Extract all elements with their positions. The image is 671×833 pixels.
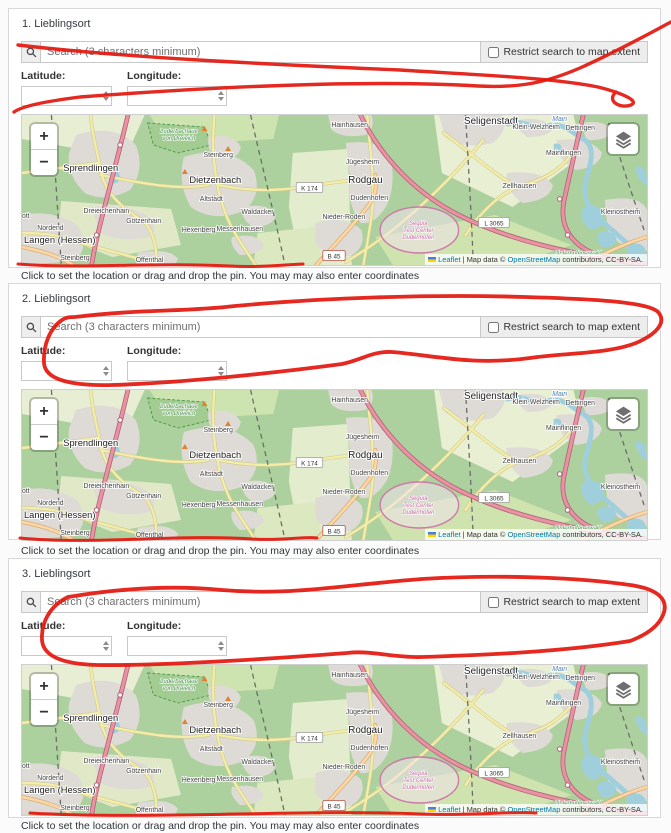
map-hint-text: Click to set the location or drag and dr… bbox=[21, 545, 648, 557]
svg-text:L 3065: L 3065 bbox=[484, 220, 504, 227]
zoom-in-button[interactable]: + bbox=[31, 399, 57, 425]
restrict-search-label: Restrict search to map extent bbox=[503, 596, 640, 608]
svg-text:Main: Main bbox=[552, 116, 567, 123]
layers-icon bbox=[614, 680, 633, 699]
attribution-divider: | bbox=[463, 255, 465, 264]
svg-text:Dietzenbach: Dietzenbach bbox=[189, 724, 241, 735]
openstreetmap-link[interactable]: OpenStreetMap bbox=[507, 805, 560, 814]
svg-text:Steinberg: Steinberg bbox=[60, 805, 89, 812]
zoom-out-button[interactable]: − bbox=[31, 150, 57, 175]
svg-text:Kleinostheim: Kleinostheim bbox=[601, 209, 640, 216]
latitude-group: Latitude: bbox=[21, 345, 112, 381]
latitude-group: Latitude: bbox=[21, 70, 112, 106]
map-attribution: Leaflet | Map data © OpenStreetMap contr… bbox=[425, 254, 647, 265]
restrict-search-addon[interactable]: Restrict search to map extent bbox=[480, 591, 648, 613]
svg-text:Rodgau: Rodgau bbox=[348, 450, 382, 461]
map-zoom-control: + − bbox=[31, 399, 57, 450]
svg-text:Jügesheim: Jügesheim bbox=[346, 159, 379, 166]
attribution-divider: | bbox=[463, 805, 465, 814]
restrict-search-addon[interactable]: Restrict search to map extent bbox=[480, 41, 648, 63]
svg-text:Jügesheim: Jügesheim bbox=[346, 434, 379, 441]
geoname-search-row: Restrict search to map extent bbox=[21, 41, 648, 63]
coordinates-row: Latitude: Longitude: bbox=[21, 70, 648, 106]
ukraine-flag-icon bbox=[428, 257, 436, 262]
svg-text:Waldacker: Waldacker bbox=[241, 484, 274, 491]
restrict-search-label: Restrict search to map extent bbox=[503, 321, 640, 333]
map-layers-control[interactable] bbox=[608, 674, 638, 704]
svg-text:Dietzenbach: Dietzenbach bbox=[189, 449, 241, 460]
svg-text:Dettingen: Dettingen bbox=[566, 400, 595, 407]
svg-text:B 45: B 45 bbox=[327, 528, 341, 535]
map-hint-text: Click to set the location or drag and dr… bbox=[21, 270, 648, 282]
svg-text:Mainflingen: Mainflingen bbox=[546, 425, 581, 432]
svg-text:Mainflingen: Mainflingen bbox=[546, 150, 581, 157]
svg-text:Zellhausen: Zellhausen bbox=[503, 183, 537, 190]
svg-text:Hainhausen: Hainhausen bbox=[331, 397, 368, 404]
svg-text:Hainhausen: Hainhausen bbox=[331, 672, 368, 679]
geoname-search-row: Restrict search to map extent bbox=[21, 591, 648, 613]
svg-text:Nordend: Nordend bbox=[37, 775, 63, 782]
svg-text:Götzenhain: Götzenhain bbox=[126, 493, 161, 500]
stepper-up-icon[interactable] bbox=[103, 91, 109, 95]
longitude-group: Longitude: bbox=[127, 345, 227, 381]
section-title: 2. Lieblingsort bbox=[22, 293, 648, 305]
svg-text:Dudenhofen: Dudenhofen bbox=[402, 785, 435, 791]
svg-text:Luderbachaue: Luderbachaue bbox=[160, 404, 198, 410]
svg-text:Dettingen: Dettingen bbox=[566, 125, 595, 132]
svg-text:Hexenberg: Hexenberg bbox=[182, 502, 216, 509]
attribution-suffix: contributors, CC-BY-SA. bbox=[562, 805, 643, 814]
svg-text:Luderbachaue: Luderbachaue bbox=[160, 679, 198, 685]
longitude-label: Longitude: bbox=[127, 70, 227, 82]
svg-text:Segula: Segula bbox=[409, 496, 428, 502]
search-icon bbox=[21, 591, 41, 613]
svg-text:Messenhausen: Messenhausen bbox=[217, 776, 264, 783]
restrict-search-label: Restrict search to map extent bbox=[503, 46, 640, 58]
leaflet-map[interactable]: K 174B 45L 3065SprendlingenDietzenbachRo… bbox=[21, 664, 648, 816]
stepper-down-icon[interactable] bbox=[103, 647, 109, 651]
search-input[interactable] bbox=[41, 316, 481, 338]
map-attribution: Leaflet | Map data © OpenStreetMap contr… bbox=[425, 804, 647, 815]
map-hint-text: Click to set the location or drag and dr… bbox=[21, 820, 648, 832]
openstreetmap-link[interactable]: OpenStreetMap bbox=[507, 255, 560, 264]
svg-text:Götzenhain: Götzenhain bbox=[126, 768, 161, 775]
svg-text:Offenthal: Offenthal bbox=[136, 532, 164, 539]
svg-text:Seligenstadt: Seligenstadt bbox=[464, 666, 518, 677]
svg-text:Dudenhofen: Dudenhofen bbox=[351, 745, 389, 752]
svg-text:K 174: K 174 bbox=[301, 460, 318, 467]
svg-text:Zellhausen: Zellhausen bbox=[503, 733, 537, 740]
map-attribution: Leaflet | Map data © OpenStreetMap contr… bbox=[425, 529, 647, 540]
longitude-label: Longitude: bbox=[127, 345, 227, 357]
svg-text:Rodgau: Rodgau bbox=[348, 175, 382, 186]
latitude-group: Latitude: bbox=[21, 620, 112, 656]
svg-text:von Dreieich: von Dreieich bbox=[163, 136, 196, 142]
leaflet-link[interactable]: Leaflet bbox=[438, 255, 461, 264]
svg-text:Altstadt: Altstadt bbox=[200, 471, 223, 478]
svg-text:Dudenhofen: Dudenhofen bbox=[402, 235, 435, 241]
longitude-stepper[interactable] bbox=[218, 86, 224, 106]
longitude-group: Longitude: bbox=[127, 620, 227, 656]
zoom-out-button[interactable]: − bbox=[31, 700, 57, 725]
geoname-search-row: Restrict search to map extent bbox=[21, 316, 648, 338]
attribution-mapdata: Map data © bbox=[467, 805, 506, 814]
latitude-input[interactable] bbox=[21, 361, 112, 381]
attribution-divider: | bbox=[463, 530, 465, 539]
leaflet-map[interactable]: K 174B 45L 3065SprendlingenDietzenbachRo… bbox=[21, 114, 648, 266]
svg-text:Langen (Hessen): Langen (Hessen) bbox=[24, 784, 95, 795]
stepper-down-icon[interactable] bbox=[218, 372, 224, 376]
lieblingsort-section: 3. Lieblingsort Restrict search to map e… bbox=[8, 558, 661, 818]
longitude-input[interactable] bbox=[127, 86, 227, 106]
longitude-group: Longitude: bbox=[127, 70, 227, 106]
svg-text:Altstadt: Altstadt bbox=[200, 746, 223, 753]
map-zoom-control: + − bbox=[31, 674, 57, 725]
svg-text:Kleinostheim: Kleinostheim bbox=[601, 759, 640, 766]
openstreetmap-link[interactable]: OpenStreetMap bbox=[507, 530, 560, 539]
svg-text:Seligenstadt: Seligenstadt bbox=[464, 116, 518, 127]
latitude-label: Latitude: bbox=[21, 620, 112, 632]
stepper-down-icon[interactable] bbox=[103, 97, 109, 101]
svg-text:Nordend: Nordend bbox=[37, 500, 63, 507]
stepper-up-icon[interactable] bbox=[103, 641, 109, 645]
svg-text:Segula: Segula bbox=[409, 771, 428, 777]
svg-text:Steinberg: Steinberg bbox=[204, 702, 233, 709]
svg-text:Hexenberg: Hexenberg bbox=[182, 227, 216, 234]
search-input[interactable] bbox=[41, 591, 481, 613]
svg-text:Dettingen: Dettingen bbox=[566, 675, 595, 682]
stepper-up-icon[interactable] bbox=[103, 366, 109, 370]
svg-text:Nieder-Roden: Nieder-Roden bbox=[322, 489, 365, 496]
restrict-search-addon[interactable]: Restrict search to map extent bbox=[480, 316, 648, 338]
svg-text:L 3065: L 3065 bbox=[484, 770, 504, 777]
layers-icon bbox=[614, 405, 633, 424]
osm-basemap: K 174B 45L 3065SprendlingenDietzenbachRo… bbox=[22, 115, 647, 265]
ukraine-flag-icon bbox=[428, 807, 436, 812]
longitude-input[interactable] bbox=[127, 361, 227, 381]
latitude-input[interactable] bbox=[21, 86, 112, 106]
attribution-mapdata: Map data © bbox=[467, 530, 506, 539]
latitude-stepper[interactable] bbox=[103, 636, 109, 656]
leaflet-link[interactable]: Leaflet bbox=[438, 805, 461, 814]
svg-text:Test Center: Test Center bbox=[403, 503, 434, 509]
svg-text:Messenhausen: Messenhausen bbox=[217, 501, 264, 508]
svg-text:Altstadt: Altstadt bbox=[200, 196, 223, 203]
ukraine-flag-icon bbox=[428, 532, 436, 537]
longitude-input[interactable] bbox=[127, 636, 227, 656]
svg-text:von Dreieich: von Dreieich bbox=[163, 411, 196, 417]
restrict-search-checkbox[interactable] bbox=[488, 597, 499, 608]
svg-text:Nordend: Nordend bbox=[37, 225, 63, 232]
svg-text:ott: ott bbox=[22, 763, 30, 770]
svg-text:Dreieichenhain: Dreieichenhain bbox=[84, 208, 130, 215]
zoom-out-button[interactable]: − bbox=[31, 425, 57, 450]
latitude-label: Latitude: bbox=[21, 345, 112, 357]
svg-text:L 3065: L 3065 bbox=[484, 495, 504, 502]
longitude-stepper[interactable] bbox=[218, 636, 224, 656]
latitude-stepper[interactable] bbox=[103, 361, 109, 381]
restrict-search-checkbox[interactable] bbox=[488, 322, 499, 333]
osm-basemap: K 174B 45L 3065SprendlingenDietzenbachRo… bbox=[22, 665, 647, 815]
svg-text:Zellhausen: Zellhausen bbox=[503, 458, 537, 465]
attribution-mapdata: Map data © bbox=[467, 255, 506, 264]
svg-text:Langen (Hessen): Langen (Hessen) bbox=[24, 509, 95, 520]
svg-text:Steinberg: Steinberg bbox=[204, 152, 233, 159]
svg-text:Sprendlingen: Sprendlingen bbox=[63, 437, 118, 448]
svg-text:Messenhausen: Messenhausen bbox=[217, 226, 264, 233]
svg-text:Dietzenbach: Dietzenbach bbox=[189, 174, 241, 185]
svg-text:Jügesheim: Jügesheim bbox=[346, 709, 379, 716]
coordinates-row: Latitude: Longitude: bbox=[21, 620, 648, 656]
svg-text:K 174: K 174 bbox=[301, 185, 318, 192]
map-zoom-control: + − bbox=[31, 124, 57, 175]
latitude-label: Latitude: bbox=[21, 70, 112, 82]
svg-text:ott: ott bbox=[22, 213, 30, 220]
leaflet-map[interactable]: K 174B 45L 3065SprendlingenDietzenbachRo… bbox=[21, 389, 648, 541]
svg-text:Waldacker: Waldacker bbox=[241, 209, 274, 216]
svg-text:Offenthal: Offenthal bbox=[136, 807, 164, 814]
svg-text:Dudenhofen: Dudenhofen bbox=[351, 195, 389, 202]
section-title: 1. Lieblingsort bbox=[22, 18, 648, 30]
svg-text:Klein-Welzheim: Klein-Welzheim bbox=[512, 399, 560, 406]
leaflet-link[interactable]: Leaflet bbox=[438, 530, 461, 539]
longitude-stepper[interactable] bbox=[218, 361, 224, 381]
svg-text:Nieder-Roden: Nieder-Roden bbox=[322, 214, 365, 221]
svg-text:K 174: K 174 bbox=[301, 735, 318, 742]
stepper-up-icon[interactable] bbox=[218, 91, 224, 95]
osm-basemap: K 174B 45L 3065SprendlingenDietzenbachRo… bbox=[22, 390, 647, 540]
latitude-input[interactable] bbox=[21, 636, 112, 656]
svg-text:Segula: Segula bbox=[409, 221, 428, 227]
svg-text:Waldacker: Waldacker bbox=[241, 759, 274, 766]
search-input[interactable] bbox=[41, 41, 481, 63]
svg-text:Klein-Welzheim: Klein-Welzheim bbox=[512, 124, 560, 131]
svg-text:Dudenhofen: Dudenhofen bbox=[351, 470, 389, 477]
stepper-down-icon[interactable] bbox=[218, 647, 224, 651]
svg-text:Hainhausen: Hainhausen bbox=[331, 122, 368, 129]
coordinates-row: Latitude: Longitude: bbox=[21, 345, 648, 381]
svg-text:Steinberg: Steinberg bbox=[60, 255, 89, 262]
svg-text:Sprendlingen: Sprendlingen bbox=[63, 162, 118, 173]
svg-text:Kleinostheim: Kleinostheim bbox=[601, 484, 640, 491]
longitude-label: Longitude: bbox=[127, 620, 227, 632]
svg-text:Luderbachaue: Luderbachaue bbox=[160, 129, 198, 135]
attribution-suffix: contributors, CC-BY-SA. bbox=[562, 530, 643, 539]
svg-text:Dreieichenhain: Dreieichenhain bbox=[84, 758, 130, 765]
stepper-up-icon[interactable] bbox=[218, 641, 224, 645]
search-icon bbox=[21, 41, 41, 63]
restrict-search-checkbox[interactable] bbox=[488, 47, 499, 58]
zoom-in-button[interactable]: + bbox=[31, 674, 57, 700]
lieblingsort-section: 2. Lieblingsort Restrict search to map e… bbox=[8, 283, 661, 540]
svg-text:Mainflingen: Mainflingen bbox=[546, 700, 581, 707]
svg-text:Test Center: Test Center bbox=[403, 228, 434, 234]
svg-text:Nieder-Roden: Nieder-Roden bbox=[322, 764, 365, 771]
zoom-in-button[interactable]: + bbox=[31, 124, 57, 150]
map-layers-control[interactable] bbox=[608, 399, 638, 429]
svg-text:Main: Main bbox=[552, 666, 567, 673]
search-icon bbox=[21, 316, 41, 338]
svg-text:Langen (Hessen): Langen (Hessen) bbox=[24, 234, 95, 245]
svg-text:Dudenhofen: Dudenhofen bbox=[402, 510, 435, 516]
latitude-stepper[interactable] bbox=[103, 86, 109, 106]
svg-text:von Dreieich: von Dreieich bbox=[163, 686, 196, 692]
section-title: 3. Lieblingsort bbox=[22, 568, 648, 580]
svg-text:Götzenhain: Götzenhain bbox=[126, 218, 161, 225]
svg-text:Hexenberg: Hexenberg bbox=[182, 777, 216, 784]
svg-text:B 45: B 45 bbox=[327, 253, 341, 260]
svg-text:Offenthal: Offenthal bbox=[136, 257, 164, 264]
svg-text:Sprendlingen: Sprendlingen bbox=[63, 712, 118, 723]
stepper-down-icon[interactable] bbox=[218, 97, 224, 101]
stepper-up-icon[interactable] bbox=[218, 366, 224, 370]
svg-text:Steinberg: Steinberg bbox=[204, 427, 233, 434]
svg-text:B 45: B 45 bbox=[327, 803, 341, 810]
svg-text:ott: ott bbox=[22, 488, 30, 495]
svg-text:Steinberg: Steinberg bbox=[60, 530, 89, 537]
stepper-down-icon[interactable] bbox=[103, 372, 109, 376]
svg-text:Main: Main bbox=[552, 391, 567, 398]
svg-text:Seligenstadt: Seligenstadt bbox=[464, 391, 518, 402]
lieblingsort-section: 1. Lieblingsort Restrict search to map e… bbox=[8, 8, 661, 268]
svg-text:Test Center: Test Center bbox=[403, 778, 434, 784]
svg-text:Rodgau: Rodgau bbox=[348, 725, 382, 736]
attribution-suffix: contributors, CC-BY-SA. bbox=[562, 255, 643, 264]
map-layers-control[interactable] bbox=[608, 124, 638, 154]
svg-text:Klein-Welzheim: Klein-Welzheim bbox=[512, 674, 560, 681]
layers-icon bbox=[614, 130, 633, 149]
svg-text:Dreieichenhain: Dreieichenhain bbox=[84, 483, 130, 490]
